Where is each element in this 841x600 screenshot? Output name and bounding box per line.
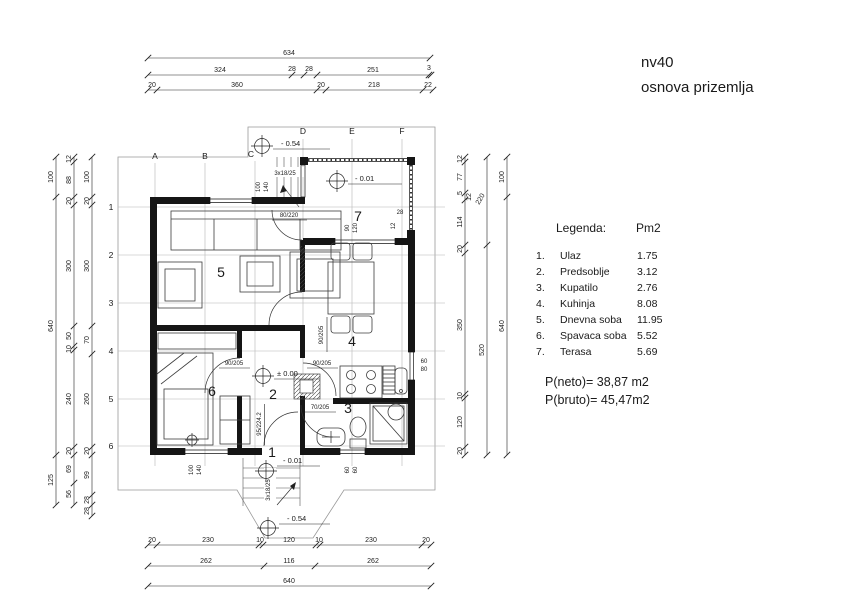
- dim-label: 240: [66, 393, 73, 405]
- dim-label: 22: [424, 82, 432, 89]
- svg-text:5.: 5.: [536, 314, 545, 326]
- svg-text:8.08: 8.08: [637, 298, 658, 310]
- drawing-title: osnova prizemlja: [641, 79, 754, 96]
- dim-label: 20: [457, 447, 464, 455]
- dim-label: 77: [457, 173, 464, 181]
- window-label-bedroom: 140: [197, 464, 203, 475]
- dim-label: 10: [256, 537, 264, 544]
- dim-label: 20: [66, 447, 73, 455]
- dim-label: 20: [148, 82, 156, 89]
- window-label-bathroom: 60: [353, 466, 359, 473]
- dim-label: 10: [457, 392, 464, 400]
- svg-text:Dnevna soba: Dnevna soba: [560, 314, 622, 326]
- grid-row-6: 6: [109, 441, 114, 451]
- dimensions-left: 100 640 125 12 88 20 300 50 10 240 20 69…: [48, 154, 95, 519]
- stairs-top-label: 3x18/25: [274, 171, 296, 177]
- grid-row-2: 2: [109, 250, 114, 260]
- svg-text:2.: 2.: [536, 266, 545, 278]
- dim-label: 520: [479, 344, 486, 356]
- grid-col-e: E: [349, 126, 355, 136]
- legend-unit: Pm2: [636, 221, 661, 235]
- dim-label: 300: [84, 260, 91, 272]
- dim-label: 120: [457, 416, 464, 428]
- dim-label: 220: [475, 192, 487, 206]
- svg-text:Kuhinja: Kuhinja: [560, 298, 595, 310]
- walls: [150, 157, 415, 455]
- dim-label: 99: [84, 471, 91, 479]
- dim-label: 88: [66, 176, 73, 184]
- dim-label: 300: [66, 260, 73, 272]
- legend-item: 3.Kupatilo2.76: [536, 282, 658, 294]
- svg-text:4.: 4.: [536, 298, 545, 310]
- dim-label: 262: [200, 558, 212, 565]
- grid-row-1: 1: [109, 202, 114, 212]
- dim-label: 260: [84, 393, 91, 405]
- dim-label: 5: [457, 191, 464, 195]
- room-numbers: 1 2 3 4 5 6 7: [208, 208, 362, 460]
- svg-text:Ulaz: Ulaz: [560, 250, 581, 262]
- svg-text:3.12: 3.12: [637, 266, 658, 278]
- legend-item: 5.Dnevna soba11.95: [536, 314, 663, 326]
- grid-col-c: C: [248, 149, 254, 159]
- grid-col-f: F: [399, 126, 404, 136]
- door-label-living: 90/205: [319, 325, 325, 344]
- door-living: [269, 292, 302, 325]
- dim-label: 28: [84, 507, 91, 515]
- dim-label: 20: [66, 197, 73, 205]
- title-block: nv40 osnova prizemlja: [641, 54, 754, 96]
- level-entrance: - 0.01: [283, 456, 302, 465]
- floor-plan-drawing: A B C D E F 1 2 3 4 5 6 3x18/25: [0, 0, 841, 595]
- svg-text:Predsoblje: Predsoblje: [560, 266, 610, 278]
- svg-text:1.: 1.: [536, 250, 545, 262]
- dim-label: 56: [66, 490, 73, 498]
- svg-text:Kupatilo: Kupatilo: [560, 282, 598, 294]
- dim-label: 640: [48, 320, 55, 332]
- grid-col-a: A: [152, 151, 158, 161]
- dim-label: 360: [231, 82, 243, 89]
- legend-item: 1.Ulaz1.75: [536, 250, 658, 262]
- dim-label: 100: [499, 171, 506, 183]
- legend-item: 7.Terasa5.69: [536, 346, 658, 358]
- dim-label: 20: [148, 537, 156, 544]
- room-number-5: 5: [217, 264, 225, 280]
- dimensions-right: 12 77 5 12 114 20 350 10 120 20 220 520 …: [457, 154, 510, 458]
- grid-col-b: B: [202, 151, 208, 161]
- level-hall: ± 0.00: [277, 369, 298, 378]
- door-label-bedroom: 90/205: [225, 361, 244, 367]
- dim-label: 20: [84, 197, 91, 205]
- svg-text:7.: 7.: [536, 346, 545, 358]
- dim-label: 50: [66, 332, 73, 340]
- room-number-6: 6: [208, 383, 216, 399]
- dimensions-top: 634 324 28 28 251 3 20 360 20 218 22: [145, 50, 436, 93]
- dimensions-bottom: 20 230 10 120 10 230 20 262 116 262 640: [145, 537, 434, 589]
- dim-label: 28: [288, 66, 296, 73]
- level-terrace: - 0.01: [355, 174, 374, 183]
- level-site-top: - 0.54: [281, 139, 300, 148]
- level-site-bottom: - 0.54: [287, 514, 306, 523]
- svg-text:1.75: 1.75: [637, 250, 658, 262]
- grid-row-5: 5: [109, 394, 114, 404]
- area-neto: P(neto)= 38,87 m2: [545, 375, 649, 389]
- dim-label: 634: [283, 50, 295, 57]
- pier-label: 28: [397, 210, 404, 216]
- dim-label: 12: [457, 155, 464, 163]
- dim-label: 20: [84, 447, 91, 455]
- legend-item: 2.Predsoblje3.12: [536, 266, 658, 278]
- dim-label: 262: [367, 558, 379, 565]
- dim-label: 100: [48, 171, 55, 183]
- dim-label: 69: [66, 465, 73, 473]
- site-outline: [118, 127, 435, 538]
- legend: Legenda: Pm2 1.Ulaz1.75 2.Predsoblje3.12…: [536, 221, 663, 407]
- dim-label: 10: [66, 345, 73, 353]
- svg-text:5.69: 5.69: [637, 346, 658, 358]
- stairs-bottom-label: 3x18/25: [266, 479, 272, 501]
- dim-label: 116: [283, 558, 294, 565]
- room-number-3: 3: [344, 400, 352, 416]
- door-label-terrace: 80/220: [280, 213, 299, 219]
- pier-label: 12: [391, 222, 397, 229]
- svg-text:Terasa: Terasa: [560, 346, 592, 358]
- dim-label: 324: [214, 67, 226, 74]
- svg-text:6.: 6.: [536, 330, 545, 342]
- door-label-bathroom: 70/205: [311, 405, 330, 411]
- grid-col-d: D: [300, 126, 306, 136]
- dim-label: 251: [367, 67, 379, 74]
- room-number-4: 4: [348, 333, 356, 349]
- window-label-kitchen: 60: [421, 359, 428, 365]
- door-entrance: [264, 412, 298, 446]
- dim-label: 20: [422, 537, 430, 544]
- svg-text:5.52: 5.52: [637, 330, 658, 342]
- dim-label: 28: [305, 66, 313, 73]
- legend-item: 4.Kuhinja8.08: [536, 298, 658, 310]
- drawing-code: nv40: [641, 54, 674, 71]
- area-bruto: P(bruto)= 45,47m2: [545, 393, 650, 407]
- dim-label: 28: [84, 496, 91, 504]
- dim-label: 230: [365, 537, 377, 544]
- window-label-top: 140: [264, 181, 270, 192]
- window-label-bedroom: 100: [189, 464, 195, 475]
- dim-label: 114: [457, 216, 464, 227]
- dim-label: 20: [317, 82, 325, 89]
- room-number-7: 7: [354, 208, 362, 224]
- room-number-1: 1: [268, 444, 276, 460]
- window-label-kitchen: 80: [421, 367, 428, 373]
- dim-label: 230: [202, 537, 214, 544]
- dim-label: 640: [499, 320, 506, 332]
- window-label-terrace: 90: [345, 224, 351, 231]
- dim-label: 10: [315, 537, 323, 544]
- dim-label: 12: [466, 193, 473, 201]
- svg-text:2.76: 2.76: [637, 282, 658, 294]
- dim-label: 125: [48, 474, 55, 486]
- window-label-top: 100: [256, 181, 262, 192]
- dim-label: 100: [84, 171, 91, 183]
- svg-text:Spavaca soba: Spavaca soba: [560, 330, 627, 342]
- dim-label: 3: [427, 65, 431, 72]
- grid-row-4: 4: [109, 346, 114, 356]
- svg-text:11.95: 11.95: [637, 314, 663, 326]
- dim-label: 218: [368, 82, 380, 89]
- dim-label: 70: [84, 336, 91, 344]
- grid-row-3: 3: [109, 298, 114, 308]
- room-number-2: 2: [269, 386, 277, 402]
- dim-label: 20: [457, 245, 464, 253]
- drawing-sheet: A B C D E F 1 2 3 4 5 6 3x18/25: [0, 0, 841, 595]
- legend-item: 6.Spavaca soba5.52: [536, 330, 658, 342]
- dim-label: 640: [283, 578, 295, 585]
- door-label-kitchen: 90/205: [313, 361, 332, 367]
- dim-label: 350: [457, 319, 464, 331]
- dim-label: 12: [66, 155, 73, 163]
- window-label-bathroom: 60: [345, 466, 351, 473]
- dim-label: 120: [283, 537, 295, 544]
- door-label-entrance: 95/224.2: [257, 412, 263, 436]
- legend-header: Legenda:: [556, 221, 606, 235]
- svg-text:3.: 3.: [536, 282, 545, 294]
